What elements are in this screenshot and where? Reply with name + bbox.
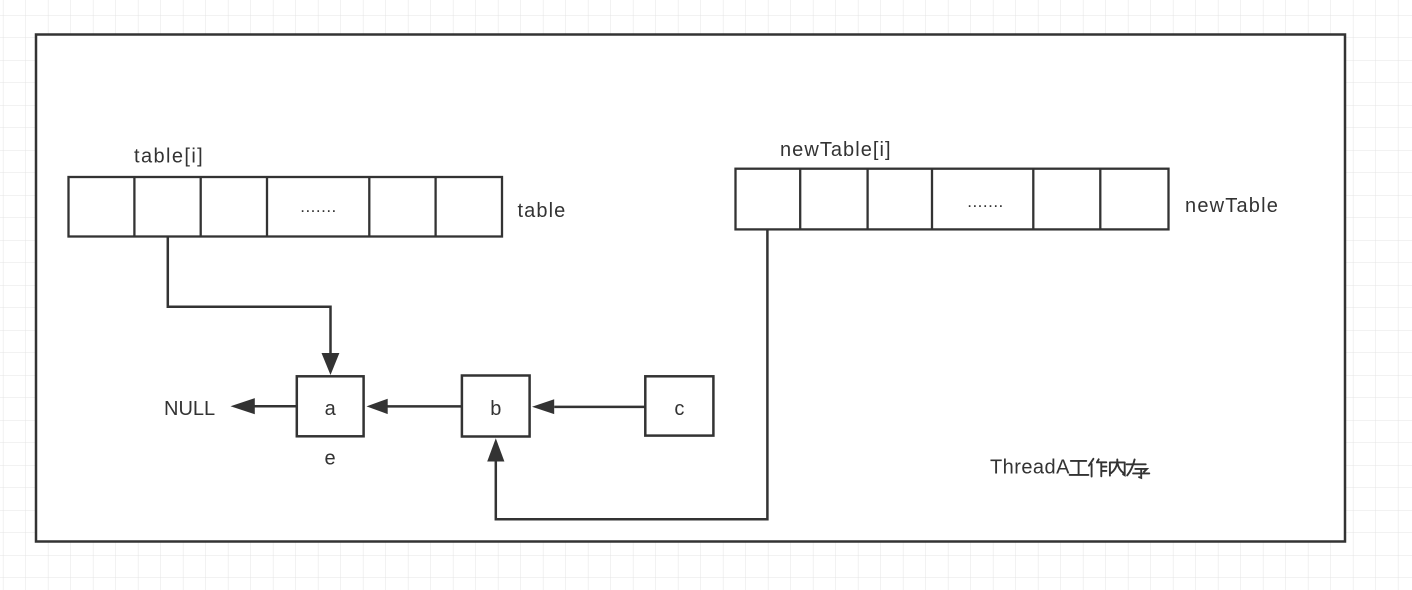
svg-text:c: c <box>674 398 684 420</box>
svg-text:.......: ....... <box>967 192 1004 211</box>
svg-text:newTable: newTable <box>1185 195 1279 217</box>
svg-text:table[i]: table[i] <box>134 146 204 168</box>
svg-text:newTable[i]: newTable[i] <box>780 139 892 161</box>
svg-text:table: table <box>518 200 567 222</box>
svg-text:ThreadA: ThreadA <box>990 457 1070 479</box>
svg-text:a: a <box>325 398 337 420</box>
svg-text:NULL: NULL <box>164 398 215 420</box>
svg-text:b: b <box>490 398 501 420</box>
svg-text:e: e <box>324 448 335 470</box>
svg-text:.......: ....... <box>300 197 337 216</box>
